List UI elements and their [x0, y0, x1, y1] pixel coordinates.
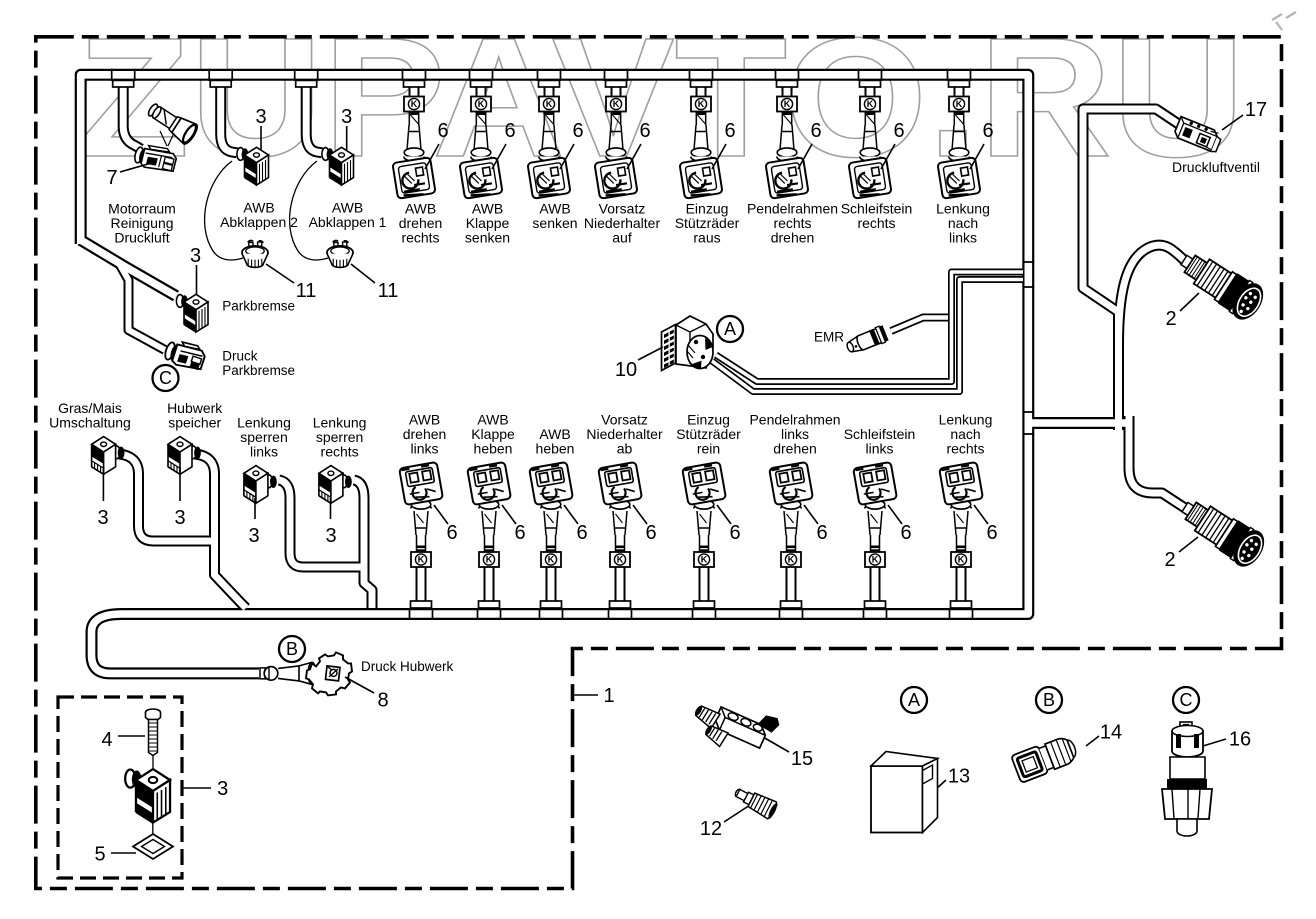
svg-text:3: 3 — [97, 507, 108, 529]
svg-text:3: 3 — [217, 778, 228, 800]
svg-text:A: A — [724, 319, 736, 339]
svg-text:Druckluftventil: Druckluftventil — [1172, 159, 1260, 175]
svg-text:senken: senken — [532, 215, 577, 231]
svg-text:EMR: EMR — [814, 330, 844, 345]
svg-text:10: 10 — [615, 359, 637, 381]
svg-text:heben: heben — [536, 441, 575, 457]
svg-text:drehen: drehen — [773, 441, 817, 457]
svg-text:6: 6 — [576, 522, 587, 544]
svg-text:C: C — [1180, 690, 1193, 710]
svg-text:Druck: Druck — [222, 349, 258, 364]
svg-text:6: 6 — [816, 522, 827, 544]
svg-text:15: 15 — [791, 748, 813, 770]
svg-text:rechts: rechts — [946, 441, 984, 457]
svg-text:11: 11 — [296, 280, 317, 302]
svg-text:6: 6 — [446, 522, 457, 544]
svg-text:raus: raus — [693, 230, 720, 246]
svg-text:rechts: rechts — [321, 444, 359, 460]
svg-text:6: 6 — [639, 120, 650, 142]
svg-text:links: links — [410, 441, 438, 457]
svg-text:3: 3 — [325, 525, 336, 547]
svg-text:Parkbremse: Parkbremse — [222, 299, 295, 314]
svg-text:ab: ab — [617, 441, 633, 457]
svg-text:heben: heben — [474, 441, 513, 457]
svg-text:11: 11 — [378, 280, 399, 302]
svg-text:3: 3 — [190, 245, 201, 267]
svg-text:rein: rein — [697, 441, 720, 457]
svg-text:2: 2 — [1165, 308, 1176, 330]
svg-text:3: 3 — [174, 507, 185, 529]
svg-text:drehen: drehen — [771, 230, 815, 246]
svg-text:6: 6 — [514, 522, 525, 544]
svg-text:13: 13 — [948, 766, 970, 788]
svg-text:6: 6 — [729, 522, 740, 544]
svg-text:3: 3 — [341, 106, 352, 128]
svg-text:6: 6 — [504, 120, 515, 142]
svg-text:Parkbremse: Parkbremse — [222, 363, 295, 378]
svg-text:B: B — [1043, 690, 1055, 710]
svg-text:16: 16 — [1229, 729, 1251, 751]
svg-text:14: 14 — [1100, 722, 1122, 744]
svg-text:A: A — [908, 690, 920, 710]
svg-text:Druckluft: Druckluft — [114, 230, 169, 246]
svg-text:senken: senken — [465, 230, 510, 246]
svg-text:17: 17 — [1245, 99, 1267, 121]
svg-text:8: 8 — [377, 690, 388, 712]
svg-text:6: 6 — [437, 120, 448, 142]
svg-text:3: 3 — [248, 525, 259, 547]
svg-text:6: 6 — [810, 120, 821, 142]
svg-text:1: 1 — [603, 685, 614, 707]
svg-text:Umschaltung: Umschaltung — [49, 415, 131, 431]
svg-text:7: 7 — [106, 167, 117, 189]
svg-text:rechts: rechts — [401, 230, 439, 246]
svg-text:B: B — [286, 639, 298, 659]
svg-text:5: 5 — [94, 844, 105, 866]
svg-text:links: links — [949, 230, 977, 246]
svg-text:rechts: rechts — [857, 215, 895, 231]
svg-text:6: 6 — [982, 120, 993, 142]
svg-text:6: 6 — [900, 522, 911, 544]
svg-text:6: 6 — [645, 522, 656, 544]
svg-text:Abklappen 2: Abklappen 2 — [220, 214, 298, 230]
svg-text:links: links — [250, 444, 278, 460]
svg-text:Druck Hubwerk: Druck Hubwerk — [361, 659, 454, 674]
svg-text:6: 6 — [986, 522, 997, 544]
svg-text:6: 6 — [572, 120, 583, 142]
svg-text:auf: auf — [612, 230, 632, 246]
svg-text:2: 2 — [1164, 549, 1175, 571]
svg-text:3: 3 — [255, 106, 266, 128]
svg-text:Abklappen 1: Abklappen 1 — [309, 214, 387, 230]
svg-text:12: 12 — [700, 818, 722, 840]
svg-text:4: 4 — [101, 729, 112, 751]
svg-text:6: 6 — [893, 120, 904, 142]
svg-text:links: links — [865, 441, 893, 457]
svg-text:speicher: speicher — [168, 415, 221, 431]
svg-text:6: 6 — [724, 120, 735, 142]
svg-text:C: C — [159, 368, 172, 388]
